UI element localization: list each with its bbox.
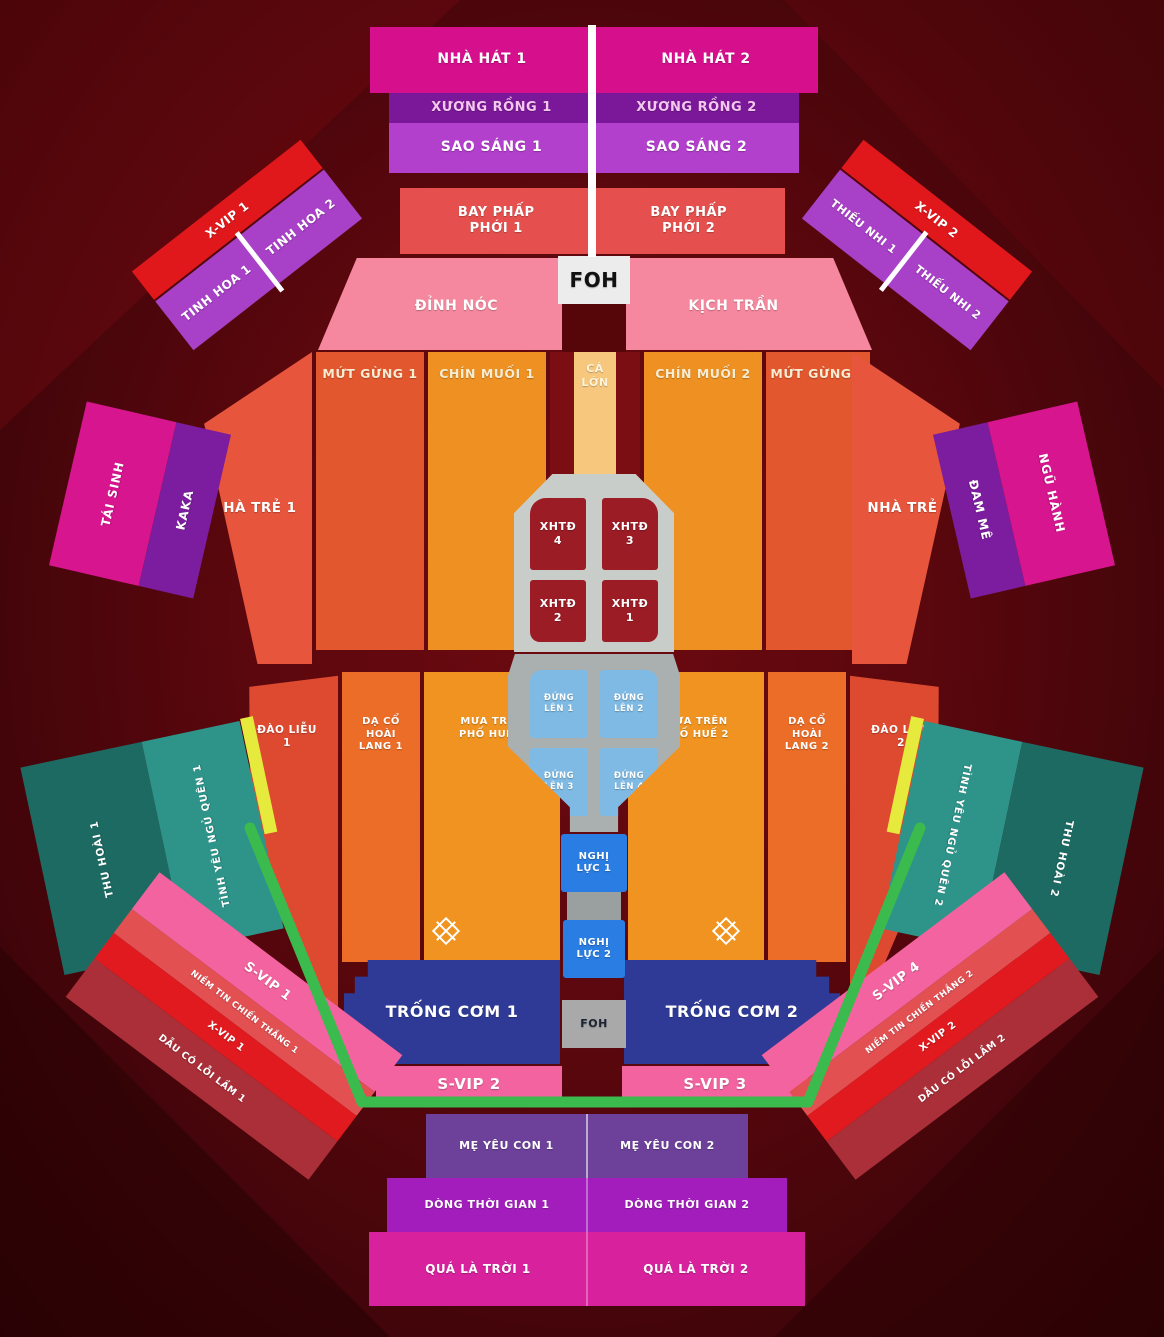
section-bay-phap-phoi-2[interactable]: BAY PHẤP PHỚI 2 <box>593 188 786 254</box>
group-damme-nguhanh: ĐAM MÊ NGŨ HÀNH <box>933 402 1115 599</box>
foh-booth-bottom: FOH <box>562 1000 626 1048</box>
diamond-icon <box>710 915 742 947</box>
section-me-yeu-con: MẸ YÊU CON 1 MẸ YÊU CON 2 <box>426 1114 748 1178</box>
section-dong-thoi-gian-1[interactable]: DÒNG THỜI GIAN 1 <box>387 1178 587 1232</box>
section-nghi-luc-1[interactable]: NGHỊ LỰC 1 <box>561 834 627 892</box>
section-kich-tran[interactable]: KỊCH TRẦN <box>628 298 839 316</box>
section-xhtd-3[interactable]: XHTĐ 3 <box>602 498 658 570</box>
runway-notch <box>562 300 626 352</box>
section-s-vip-2[interactable]: S-VIP 2 <box>376 1066 562 1102</box>
section-da-co-hoai-lang-2[interactable]: DẠ CỔ HOÀI LANG 2 <box>768 672 846 962</box>
divider <box>586 1178 588 1232</box>
seat-map-canvas: NHÀ HÁT 1 NHÀ HÁT 2 XƯƠNG RỒNG 1 XƯƠNG R… <box>0 0 1164 1337</box>
section-dong-thoi-gian-2[interactable]: DÒNG THỜI GIAN 2 <box>587 1178 787 1232</box>
section-da-co-hoai-lang-1[interactable]: DẠ CỔ HOÀI LANG 1 <box>342 672 420 962</box>
center-divider-line <box>588 25 596 257</box>
section-nha-hat-2[interactable]: NHÀ HÁT 2 <box>594 27 818 93</box>
section-sao-sang-2[interactable]: SAO SÁNG 2 <box>594 123 799 173</box>
section-me-yeu-con-1[interactable]: MẸ YÊU CON 1 <box>426 1114 587 1178</box>
runway-wall-left <box>550 352 574 478</box>
section-dinh-noc[interactable]: ĐỈNH NÓC <box>351 298 562 316</box>
section-xuong-rong-2[interactable]: XƯƠNG RỒNG 2 <box>594 93 799 123</box>
section-xhtd-1[interactable]: XHTĐ 1 <box>602 580 658 642</box>
section-nha-hat-1[interactable]: NHÀ HÁT 1 <box>370 27 594 93</box>
section-dung-len-2[interactable]: ĐỨNG LÊN 2 <box>600 670 658 738</box>
section-bay-phap-phoi-1[interactable]: BAY PHẤP PHỚI 1 <box>400 188 593 254</box>
group-taisinh-kaka: TÁI SINH KAKA <box>49 402 231 599</box>
foh-booth-top: FOH <box>558 256 630 304</box>
section-nghi-luc-2[interactable]: NGHỊ LỰC 2 <box>563 920 625 978</box>
section-me-yeu-con-2[interactable]: MẸ YÊU CON 2 <box>587 1114 748 1178</box>
group-xvip-tinhhoa-left: X-VIP 1 TINH HOA 1 TINH HOA 2 <box>132 140 362 351</box>
diamond-icon <box>430 915 462 947</box>
section-qua-la-troi: QUÁ LÀ TRỜI 1 QUÁ LÀ TRỜI 2 <box>369 1232 805 1306</box>
section-qua-la-troi-1[interactable]: QUÁ LÀ TRỜI 1 <box>369 1232 587 1306</box>
section-dung-len-1[interactable]: ĐỨNG LÊN 1 <box>530 670 588 738</box>
divider <box>586 1232 588 1306</box>
section-sao-sang-1[interactable]: SAO SÁNG 1 <box>389 123 594 173</box>
section-xhtd-4[interactable]: XHTĐ 4 <box>530 498 586 570</box>
divider <box>586 1114 588 1178</box>
section-xuong-rong-1[interactable]: XƯƠNG RỒNG 1 <box>389 93 594 123</box>
section-dong-thoi-gian: DÒNG THỜI GIAN 1 DÒNG THỜI GIAN 2 <box>387 1178 787 1232</box>
runway-segment <box>567 892 621 920</box>
section-xhtd-2[interactable]: XHTĐ 2 <box>530 580 586 642</box>
section-qua-la-troi-2[interactable]: QUÁ LÀ TRỜI 2 <box>587 1232 805 1306</box>
stage-house: XHTĐ 4 XHTĐ 3 XHTĐ 2 XHTĐ 1 <box>514 474 674 652</box>
section-mut-gung-1[interactable]: MỨT GỪNG 1 <box>316 352 424 650</box>
section-ca-lon[interactable]: CÁ LỚN <box>574 352 616 478</box>
runway-wall-right <box>616 352 640 478</box>
